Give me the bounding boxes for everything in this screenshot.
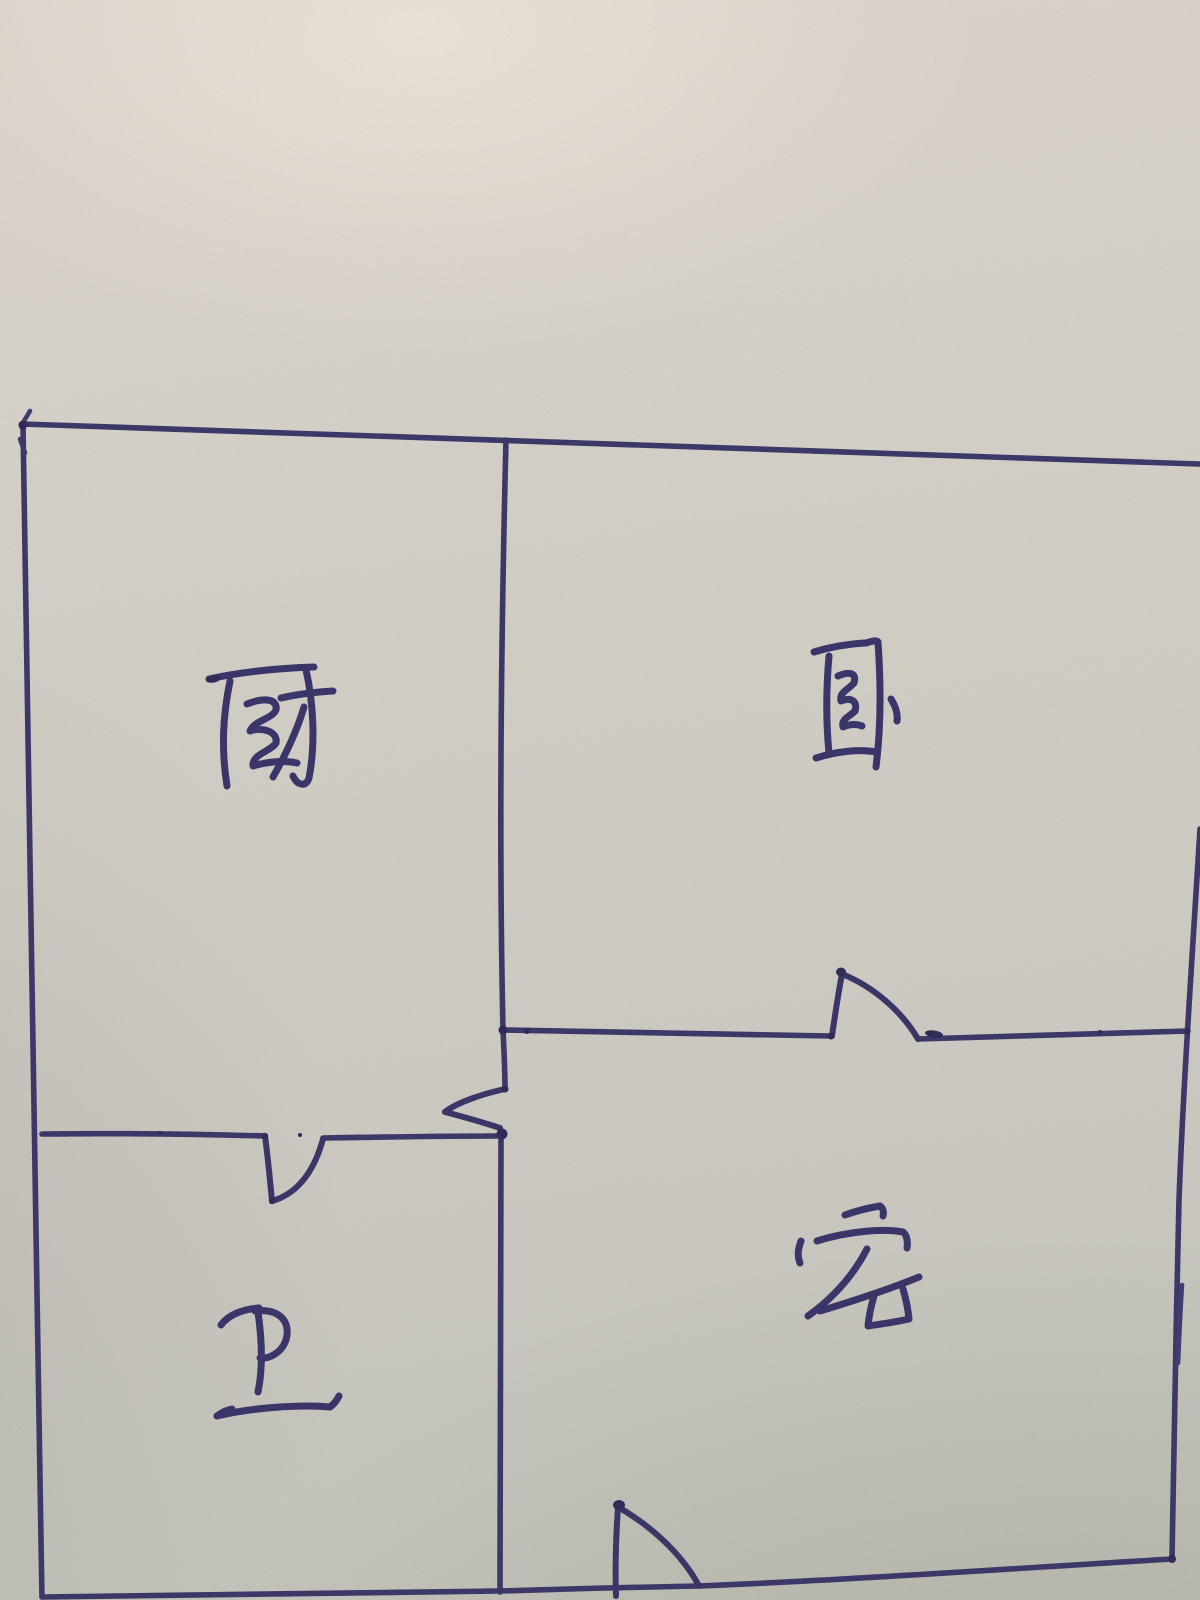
outer-wall-left [23, 426, 42, 1597]
bathroom-kitchen-wall-right-segment [323, 1136, 500, 1138]
bathroom-hanzi-stroke [330, 1396, 339, 1407]
room-label-kitchen: 厨 [206, 667, 333, 786]
bedroom-hanzi-stroke [838, 673, 862, 727]
entry-door [613, 1500, 699, 1596]
bedroom-door-hinge-dot [836, 968, 846, 977]
entry-door-hinge-dot [613, 1500, 625, 1510]
bathroom-door-arc [272, 1139, 323, 1201]
kitchen-hanzi-stroke [209, 667, 314, 679]
ink-speck [1098, 1030, 1102, 1034]
room-label-bathroom: 卫 [217, 1308, 339, 1416]
living-hanzi-stroke [845, 1206, 883, 1216]
ink-blob [497, 1129, 508, 1140]
kitchen-door [445, 1089, 505, 1128]
interior-wall-vertical-lower [500, 1140, 501, 1592]
bathroom-door-jamb [265, 1136, 272, 1201]
ink-blob [828, 1033, 835, 1040]
ink-speck [158, 1131, 162, 1135]
ink-blob [524, 1028, 530, 1034]
bedroom-living-wall-right-segment [918, 1031, 1188, 1039]
ink-blob [502, 1086, 509, 1093]
bedroom-hanzi-stroke [891, 699, 897, 721]
bedroom-door [832, 968, 943, 1040]
ink-blob [1168, 1555, 1176, 1563]
room-label-bedroom: 卧 [814, 641, 897, 767]
bedroom-living-wall-left-segment [503, 1030, 830, 1036]
paper-photo: 厨 卧 卫 客 [0, 0, 1200, 1600]
entry-door-arc [618, 1507, 699, 1586]
bedroom-hanzi-stroke [827, 656, 829, 753]
bedroom-hanzi-stroke [814, 643, 864, 652]
entry-door-jamb [616, 1507, 618, 1596]
ink-blob [262, 1133, 268, 1139]
ink-speck [298, 1133, 302, 1137]
outer-wall-top [22, 424, 1199, 464]
outer-wall-bottom [42, 1559, 1172, 1597]
walls [20, 411, 1200, 1597]
interior-wall-vertical-upper [501, 440, 506, 1089]
kitchen-door-arc [445, 1089, 505, 1112]
living-hanzi-stroke [868, 1289, 909, 1326]
bathroom-hanzi-stroke [258, 1312, 261, 1392]
ink-blob [19, 421, 28, 430]
bedroom-door-jamb [832, 974, 842, 1036]
kitchen-hanzi-stroke [247, 700, 297, 766]
kitchen-hanzi-stroke [281, 691, 333, 698]
bathroom-door [265, 1136, 323, 1201]
ink-blob [269, 1198, 275, 1204]
ink-blob [1184, 1028, 1190, 1034]
ink-blob [499, 1026, 508, 1035]
living-hanzi-stroke [817, 1230, 907, 1248]
room-label-living-room: 客 [798, 1206, 919, 1326]
living-hanzi-stroke [798, 1241, 801, 1263]
ink-blobs [19, 421, 1191, 1564]
kitchen-hanzi-stroke [223, 681, 230, 786]
bedroom-hanzi-stroke [816, 751, 876, 758]
bathroom-kitchen-wall-left-segment [42, 1134, 265, 1136]
outer-wall-right [1172, 829, 1200, 1559]
floor-plan-drawing: 厨 卧 卫 客 [0, 0, 1200, 1600]
kitchen-door-leaf [445, 1112, 500, 1128]
bedroom-door-arc [842, 974, 918, 1039]
